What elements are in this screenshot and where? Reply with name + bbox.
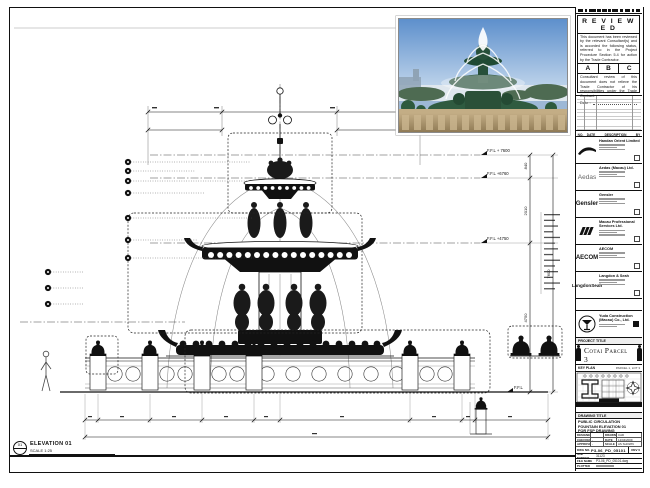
contractor-block: Yuda Construction (Macau) Co., Ltd. xyxy=(576,310,642,338)
consultant-checkbox xyxy=(634,263,640,269)
grade-c: C xyxy=(619,64,639,73)
job-number-value: 31123 xyxy=(596,454,605,458)
consultant-name: Gensler xyxy=(599,193,641,197)
gensler-logo: Gensler xyxy=(576,201,598,207)
view-title: 01 ELEVATION 01 SCALE 1:25 xyxy=(13,441,163,457)
consultant-checkbox xyxy=(634,209,640,215)
drawing-title: PUBLIC CIRCULATION FOUNTAIN ELEVATION 01… xyxy=(576,419,642,433)
mps-logo-icon xyxy=(576,218,598,244)
consultant-checkbox xyxy=(634,155,640,161)
consultant-aedas: Aedas Aedas (Macau) Ltd. xyxy=(576,164,642,191)
consultant-mps: Macau Professional Services Ltd. xyxy=(576,218,642,245)
handan-orient-logo-icon xyxy=(576,137,598,163)
reviewed-body-1: This document has been reviewed by the r… xyxy=(580,35,637,63)
rev-badge: REV 0 xyxy=(628,447,642,454)
key-plan-parcel: PARCEL 1, LOT 3 xyxy=(616,366,640,370)
key-plan-label: KEY PLAN xyxy=(578,366,595,370)
key-plan-map xyxy=(576,372,642,403)
elevation-label: ELEVATION 01 xyxy=(30,441,72,447)
consultant-checkbox xyxy=(634,236,640,242)
project-title-label: PROJECT TITLE xyxy=(576,338,642,345)
consultant-checkbox xyxy=(634,182,640,188)
consultant-aecom: AECOM AECOM xyxy=(576,245,642,272)
consultant-handan: Handan Orient Limited xyxy=(576,137,642,164)
file-name-value: P3-06_PD_05101.dwg xyxy=(596,459,628,463)
view-title-underline xyxy=(29,454,115,456)
aecom-logo: AECOM xyxy=(576,255,598,261)
revision-col-line xyxy=(596,96,597,130)
status-grades: A B C xyxy=(578,63,639,74)
scale-label: SCALE 1:25 xyxy=(30,448,52,453)
grade-b: B xyxy=(599,64,620,73)
title-block: R E V I E W E D This document has been r… xyxy=(575,7,643,471)
consultant-name: AECOM xyxy=(599,247,641,251)
consultant-gensler: Gensler Gensler xyxy=(576,191,642,218)
consultant-name: Langdon & Seah xyxy=(599,274,641,278)
drawing-sheet: F.F.L + 7600 F.F.L +6760 F.F.L +4750 F.F… xyxy=(0,0,650,488)
grade-a: A xyxy=(578,64,599,73)
dwg-no-value: P3-06_PD_05101 xyxy=(591,448,628,453)
signoff-table: DESIGNER DRAWN CAD CHECKED - DATE 12/04/… xyxy=(576,433,642,447)
consultant-checkbox xyxy=(634,290,640,296)
yuda-logo-icon xyxy=(576,311,598,337)
contractor-mark xyxy=(633,321,639,327)
consultant-name: Handan Orient Limited xyxy=(599,139,641,143)
consultant-langdon-seah: LangdonSeah Langdon & Seah xyxy=(576,272,642,299)
key-plan-bar: KEY PLAN PARCEL 1, LOT 3 xyxy=(576,365,642,372)
reviewed-title: R E V I E W E D xyxy=(578,16,639,34)
revision-col-line xyxy=(584,96,585,130)
key-plan xyxy=(576,372,642,403)
consultant-name: Aedas (Macau) Ltd. xyxy=(599,166,641,170)
ornament-lamp-icon xyxy=(637,348,642,361)
view-symbol: 01 xyxy=(13,441,27,455)
revision-col-line xyxy=(632,96,633,130)
aedas-logo: Aedas xyxy=(578,174,596,181)
project-name: Cotai Parcel 3 xyxy=(584,346,634,364)
revision-table: NO. DATE DESCRIPTION BY xyxy=(576,95,642,137)
plotted-row: PLOTTED xyxy=(576,464,642,469)
reviewed-stamp: R E V I E W E D This document has been r… xyxy=(577,15,640,93)
project-name-row: Cotai Parcel 3 xyxy=(576,345,642,365)
ornament-lamp-icon xyxy=(576,348,581,361)
sheet-border xyxy=(9,7,644,473)
consultant-name: Macau Professional Services Ltd. xyxy=(599,220,641,228)
plotted-label: PLOTTED xyxy=(576,464,596,468)
file-name-label: FILE NAME xyxy=(576,459,596,463)
disclaimer-strip xyxy=(576,8,642,14)
